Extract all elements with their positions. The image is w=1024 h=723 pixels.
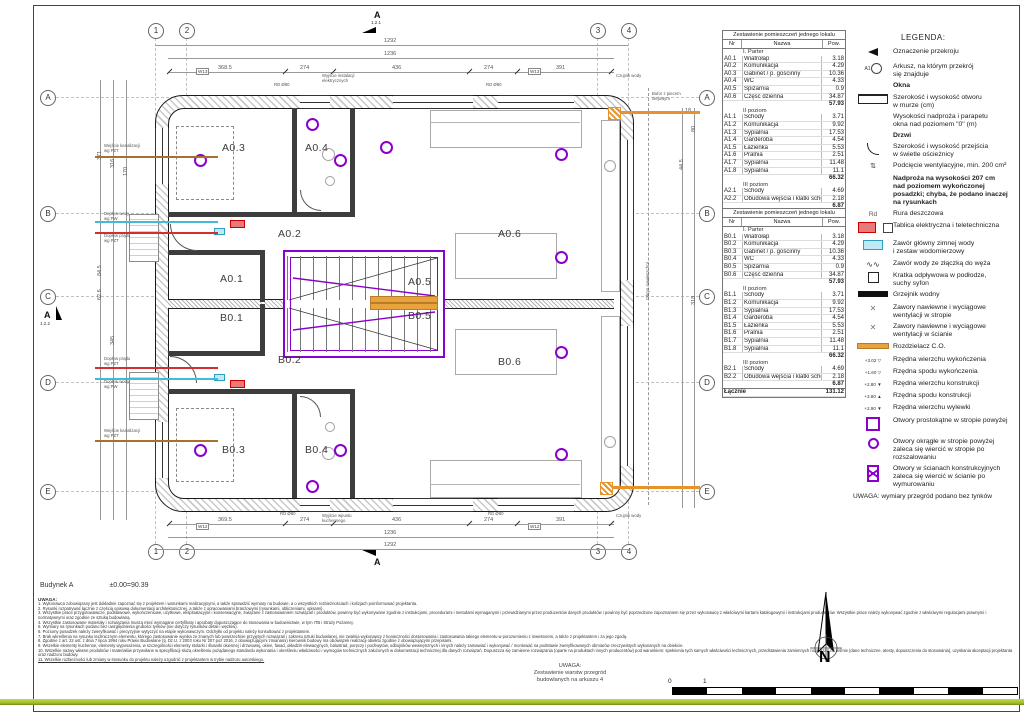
cell-nr: A0.4	[723, 78, 743, 85]
legend-item: Grzejnik wodny	[853, 291, 1021, 301]
north-letter: N	[819, 649, 831, 666]
legend-item: Otwory w ścianach konstrukcyjnych zaleca…	[853, 465, 1021, 489]
section-marker-top: A	[374, 10, 381, 20]
table-row: III poziom	[723, 360, 845, 367]
cell-name: Garderoba	[743, 315, 822, 322]
cell-nr	[723, 108, 742, 115]
vent-symbol	[555, 251, 568, 264]
cell-pow: 4.29	[822, 241, 845, 248]
sewer-line-a	[95, 156, 218, 158]
window-a06-top-2	[498, 95, 574, 109]
sofa-line	[430, 484, 580, 485]
vent-symbol	[555, 148, 568, 161]
cell-name: Gabinet / p. gościnny	[743, 249, 822, 256]
dim-left-5: 62.6	[97, 289, 103, 300]
vent-symbol	[306, 118, 319, 131]
table-title: Zestawienie pomieszczeń jednego lokalu	[723, 31, 845, 40]
cell-name: Sypialnia	[743, 130, 822, 137]
legend-item-label: Podcięcie wentylacyjne, min. 200 cm²	[893, 162, 1021, 171]
cell-nr: A0.3	[723, 71, 743, 78]
grid-bubble-col4-bottom: 4	[621, 544, 637, 560]
table-row: Łącznie 131.12	[723, 388, 845, 397]
cell-name: WC	[743, 78, 822, 85]
table-row: 57.93	[723, 101, 845, 108]
grid-bubble-col1-top: 1	[148, 23, 164, 39]
table-row: 66.32	[723, 175, 845, 182]
cell-pow: 11.48	[822, 160, 845, 167]
legend-item-icon	[853, 438, 893, 462]
window-b06-bottom-1	[393, 498, 473, 512]
table-title: Zestawienie pomieszczeń jednego lokalu	[723, 209, 845, 218]
legend-item: Otwory prostokątne w stropie powyżej	[853, 417, 1021, 435]
table-row: III poziom	[723, 182, 845, 189]
cell-name: Część dzienna	[743, 94, 822, 101]
table-row: B1.7 Sypialnia 11.48	[723, 338, 845, 346]
window-tag-w13-left: W13	[196, 68, 209, 75]
dim-top-seg2: 274	[300, 65, 309, 71]
legend-item-label: Zawór główny zimnej wody i zestaw wodomi…	[893, 240, 1021, 256]
legend-item-icon	[853, 94, 893, 110]
dim-line-left-1	[100, 80, 101, 520]
cell-nr: A1.8	[723, 168, 743, 175]
table-row: II poziom	[723, 108, 845, 115]
legend-item-icon	[853, 465, 893, 489]
legend-item: Kratka odpływowa w podłodze, suchy syfon	[853, 272, 1021, 288]
cell-pow: 4.33	[822, 256, 845, 263]
basin-b04	[325, 422, 335, 432]
table-row: B1.8 Sypialnia 11.1	[723, 346, 845, 354]
cell-pow	[822, 49, 845, 56]
section-marker-left: A	[44, 310, 51, 320]
cell-nr: B2.1	[723, 366, 743, 373]
legend-item-label: Otwory prostokątne w stropie powyżej	[893, 417, 1021, 435]
buffer-label: Bufor z piecem olejowym	[652, 92, 681, 102]
sewer-line-b	[95, 440, 218, 442]
cell-name: I. Parter	[742, 49, 822, 56]
legend-item-label: Zawory nawiewne i wyciągowe wentylacji w…	[893, 323, 1021, 339]
table-row: A0.1 Wiatrołap 3.18	[723, 56, 845, 64]
legend-item: Rd Rura deszczowa	[853, 210, 1021, 219]
legend-item-icon: ✕	[853, 304, 893, 320]
dim-line-bottom-inner	[168, 537, 614, 538]
cell-name	[742, 175, 822, 182]
legend-item-label: Szerokość i wysokość przejścia w świetle…	[893, 143, 1021, 159]
grid-bubble-col4-top: 4	[621, 23, 637, 39]
legend-item-icon: Rd	[853, 210, 893, 219]
grid-bubble-row-b-left: B	[40, 206, 56, 222]
cell-pow: 0.9	[822, 264, 845, 271]
cell-pow: 66.32	[822, 175, 845, 182]
table-row: B0.6 Część dzienna 34.87	[723, 272, 845, 280]
scale-label-0: 0	[668, 678, 672, 685]
wall-a03-a04	[292, 108, 297, 216]
cell-name: I. Parter	[742, 227, 822, 234]
legend-item-label: Otwory okrągłe w stropie powyżej zaleca …	[893, 438, 1021, 462]
note-item: 11. Wszelkie rozbieżności lub zmiany w s…	[38, 658, 1014, 663]
cell-name	[742, 279, 822, 286]
room-label-b03: B0.3	[222, 444, 245, 456]
dim-bot-seg4: 274	[484, 517, 493, 523]
cell-nr	[723, 49, 742, 56]
room-schedule-table-a: Zestawienie pomieszczeń jednego lokalu N…	[722, 30, 846, 220]
dim-top-seg5: 391	[556, 65, 565, 71]
col-nr: Nr	[723, 218, 742, 226]
legend-item-label: Wysokości nadproża i parapetu okna nad p…	[893, 113, 1021, 129]
dim-line-top-total	[155, 45, 628, 46]
legend-item-icon: +2.80 ▼	[853, 380, 893, 389]
grid-bubble-row-a-left: A	[40, 90, 56, 106]
legend-item-icon: ⇅	[853, 162, 893, 171]
cell-nr: B0.4	[723, 256, 743, 263]
cell-nr: B1.7	[723, 338, 743, 345]
legend-item-icon: +1.60 ▽	[853, 368, 893, 377]
cell-pow	[822, 108, 845, 115]
legend-item: Szerokość i wysokość otworu w murze (cm)	[853, 94, 1021, 110]
cell-name: Sypialnia	[743, 308, 822, 315]
grid-bubble-row-d-left: D	[40, 375, 56, 391]
legend-item-label: Rzędna spodu konstrukcji	[893, 392, 1021, 401]
table-row: B0.2 Komunikacja 4.29	[723, 241, 845, 249]
legend-item-label: Kratka odpływowa w podłodze, suchy syfon	[893, 272, 1021, 288]
cell-name: Schody	[743, 188, 822, 195]
col-pow: Pow.	[823, 40, 845, 48]
section-sheet-left: 1.2.2	[40, 321, 50, 326]
kitchen-out-label: Wyjście wpustu kuchennego	[322, 514, 352, 524]
grid-bubble-col2-bottom: 2	[179, 544, 195, 560]
table-row: A1.4 Garderoba 4.54	[723, 137, 845, 145]
dim-right-2: 80	[691, 126, 697, 132]
sofa-line	[430, 122, 580, 123]
co-manifold-a	[370, 296, 438, 303]
cell-name: Spiżarnia	[743, 86, 822, 93]
sewer-label-b: Wejście kanalizacji wg PZT	[104, 429, 140, 439]
cell-pow: 11.1	[822, 346, 845, 353]
scale-bar	[672, 687, 1018, 695]
drain-line	[612, 486, 700, 489]
electrical-panel-a	[230, 220, 245, 228]
cell-name: Spiżarnia	[743, 264, 822, 271]
cell-name: Wiatrołap	[743, 234, 822, 241]
cell-name: Sypialnia	[743, 168, 822, 175]
cell-name: Sypialnia	[743, 160, 822, 167]
cell-name: Schody	[743, 292, 822, 299]
cell-pow: 131.12	[822, 389, 845, 396]
table-row: B0.3 Gabinet / p. gościnny 10.36	[723, 249, 845, 257]
building-caption: Budynek A ±0.00=90.39	[40, 582, 183, 589]
dim-bot-seg1: 369.5	[218, 517, 232, 523]
legend-item-label: Drzwi	[893, 132, 1021, 140]
cell-pow: 10.36	[822, 249, 845, 256]
legend-item: Tablica elektryczna i teletechniczna	[853, 222, 1021, 237]
vent-symbol	[334, 154, 347, 167]
cell-pow	[822, 182, 845, 189]
legend-item: Oznaczenie przekroju	[853, 48, 1021, 60]
buffer-connection-icon	[608, 107, 621, 120]
table-row: A0.5 Spiżarnia 0.9	[723, 86, 845, 94]
table-row: A1.7 Sypialnia 11.48	[723, 160, 845, 168]
legend-item-icon	[853, 417, 893, 435]
water-label-b: Dopływ wody wg PW	[104, 380, 129, 390]
legend-item-label: Rura deszczowa	[893, 210, 1021, 219]
table-row: B0.4 WC 4.33	[723, 256, 845, 264]
cell-pow: 10.36	[822, 71, 845, 78]
table-row: B1.1 Schody 3.71	[723, 292, 845, 300]
legend-item: Otwory okrągłe w stropie powyżej zaleca …	[853, 438, 1021, 462]
legend-item-label: Okna	[893, 82, 1021, 90]
legend-item: +2.90 ▼ Rzędna wierzchu wylewki	[853, 404, 1021, 413]
legend-item: +1.60 ▽ Rzędna spodu wykończenia	[853, 368, 1021, 377]
table-header: Nr Nazwa Pow.	[723, 218, 845, 227]
window-a04	[300, 95, 330, 109]
col-nr: Nr	[723, 40, 742, 48]
table-row: B2.1 Schody 4.69	[723, 366, 845, 374]
cell-nr: B0.3	[723, 249, 743, 256]
cell-pow: 4.69	[822, 188, 845, 195]
room-label-a06: A0.6	[498, 228, 521, 240]
cell-pow	[822, 360, 845, 367]
table-row: A2.1 Schody 4.69	[723, 188, 845, 196]
cell-nr: A1.6	[723, 152, 743, 159]
dim-line-top-inner	[168, 58, 614, 59]
cell-pow: 17.53	[822, 130, 845, 137]
cell-nr: A0.2	[723, 63, 743, 70]
cell-name: Komunikacja	[743, 300, 822, 307]
wall-a03-bottom	[168, 212, 355, 217]
table-row: B2.2 Obudowa wejścia i klatki schodowej …	[723, 374, 845, 382]
legend-item-label: Rzędna wierzchu wylewki	[893, 404, 1021, 413]
legend-item-icon: +3.80 ▲	[853, 392, 893, 401]
room-label-a04: A0.4	[305, 142, 328, 154]
room-label-b01: B0.1	[220, 312, 243, 324]
dim-line-bottom-total	[155, 549, 628, 550]
table-row: B1.5 Łazienka 5.53	[723, 323, 845, 331]
dim-top-inner: 1236	[384, 51, 396, 57]
sofa-b06	[430, 460, 582, 498]
legend-item: A1 Arkusz, na którym przekrój się znajdu…	[853, 63, 1021, 79]
table-row: B1.2 Komunikacja 9.92	[723, 300, 845, 308]
cell-nr: B2.2	[723, 374, 743, 381]
cell-name: Łazienka	[743, 323, 822, 330]
col-nazwa: Nazwa	[742, 40, 823, 48]
dim-top-seg4: 274	[484, 65, 493, 71]
legend-item-icon	[853, 343, 893, 353]
cell-name: Komunikacja	[743, 63, 822, 70]
rain-pipe-tag-4: RD Ø80	[488, 512, 504, 517]
cell-name: Schody	[743, 366, 822, 373]
cell-pow: 2.51	[822, 330, 845, 337]
cell-nr: B0.1	[723, 234, 743, 241]
rain-pipe-tag-1: RD Ø80	[274, 83, 290, 88]
buffer-line	[620, 111, 700, 114]
legend-item: ✕ Zawory nawiewne i wyciągowe wentylacji…	[853, 323, 1021, 339]
sink-b	[604, 436, 616, 448]
room-label-b06: B0.6	[498, 356, 521, 368]
grid-bubble-col3-bottom: 3	[590, 544, 606, 560]
kitchen-counter-a	[601, 120, 620, 292]
vent-symbol	[334, 444, 347, 457]
cell-name	[742, 389, 822, 396]
cell-pow: 2.51	[822, 152, 845, 159]
legend-item-icon	[853, 240, 893, 256]
sink-a	[604, 160, 616, 172]
legend-item-icon	[853, 48, 893, 60]
table-row: 6.87	[723, 381, 845, 388]
dim-line-right-2	[694, 108, 695, 508]
legend-item-label: Otwory w ścianach konstrukcyjnych zaleca…	[893, 465, 1021, 489]
kitchen-counter-b	[601, 316, 620, 488]
cell-nr: B1.3	[723, 308, 743, 315]
cell-pow: 4.54	[822, 315, 845, 322]
power-line-b	[95, 367, 218, 369]
window-tag-w12-right: W12	[528, 523, 541, 530]
elec-out-label-top: Wyjście instalacji elektrycznych	[322, 74, 354, 84]
north-arrow-icon: N	[806, 590, 846, 681]
scale-label-1: 1	[703, 678, 707, 685]
cell-name: Obudowa wejścia i klatki schodowej	[743, 374, 822, 381]
cell-nr	[723, 101, 742, 108]
legend-item: ⇅ Podcięcie wentylacyjne, min. 200 cm²	[853, 162, 1021, 171]
section-sheet-top: 1.2.1	[371, 20, 381, 25]
table-row: II poziom	[723, 286, 845, 293]
wall-b04-kitchen	[350, 390, 355, 498]
table-row: A1.6 Pralnia 2.51	[723, 152, 845, 160]
room-label-b02: B0.2	[278, 354, 301, 366]
room-label-a03: A0.3	[222, 142, 245, 154]
legend-item-label: Oznaczenie przekroju	[893, 48, 1021, 60]
pavement-label: Obrys nawierzchni	[645, 262, 650, 300]
legend-item-icon: A1	[853, 63, 893, 79]
section-marker-bottom: A	[374, 557, 381, 567]
cell-nr: B1.2	[723, 300, 743, 307]
cell-pow: 57.93	[822, 101, 845, 108]
grid-bubble-row-a-right: A	[699, 90, 715, 106]
power-label-a: Dopływ prądu wg PZT	[104, 234, 130, 244]
dim-right-3: 44.5	[679, 159, 685, 170]
legend-item-label: Arkusz, na którym przekrój się znajduje	[893, 63, 1021, 79]
legend-item-icon: +2.90 ▼	[853, 404, 893, 413]
grid-bubble-row-e-left: E	[40, 484, 56, 500]
cell-name	[742, 353, 822, 360]
vent-symbol	[380, 141, 393, 154]
legend-item-icon: ✕	[853, 323, 893, 339]
legend-item: Drzwi	[853, 132, 1021, 140]
grid-bubble-col1-bottom: 1	[148, 544, 164, 560]
cell-pow: 34.87	[822, 272, 845, 279]
cell-nr: B1.4	[723, 315, 743, 322]
room-label-a02: A0.2	[278, 228, 301, 240]
legend-item: Nadproża na wysokości 207 cm nad poziome…	[853, 175, 1021, 207]
dim-bot-seg2: 274	[300, 517, 309, 523]
cell-nr: A1.5	[723, 145, 743, 152]
window-tag-w12-left: W12	[196, 523, 209, 530]
dim-left-6: 345	[110, 336, 116, 345]
water-label-a: Dopływ wody wg PW	[104, 212, 129, 222]
cell-pow: 3.18	[822, 56, 845, 63]
legend-item: Szerokość i wysokość przejścia w świetle…	[853, 143, 1021, 159]
cell-nr: A2.1	[723, 188, 743, 195]
drawing-sheet: 1 2 3 4 1 2 3 4 A B C D E A B C D E A 1.…	[0, 0, 1024, 723]
sofa-a06	[430, 110, 582, 148]
cell-pow: 9.92	[822, 300, 845, 307]
cell-nr: B1.5	[723, 323, 743, 330]
table-row: A1.8 Sypialnia 11.1	[723, 168, 845, 176]
wall-a01-a02	[260, 250, 265, 302]
wall-a04-kitchen	[350, 108, 355, 216]
cell-name: Sypialnia	[743, 346, 822, 353]
wall-b03-b04	[292, 390, 297, 498]
cell-pow: 5.53	[822, 145, 845, 152]
cell-pow: 17.53	[822, 308, 845, 315]
legend-title: LEGENDA:	[901, 33, 1021, 42]
table-row: B1.6 Pralnia 2.51	[723, 330, 845, 338]
dim-top-seg3: 436	[392, 65, 401, 71]
wall-a01-top	[168, 250, 265, 255]
cell-name: Schody	[743, 114, 822, 121]
cell-nr	[723, 286, 742, 293]
wall-b01-b02	[260, 304, 265, 356]
vent-symbol	[194, 444, 207, 457]
table-row: B1.3 Sypialnia 17.53	[723, 308, 845, 316]
grid-bubble-row-c-left: C	[40, 289, 56, 305]
table-row: A0.3 Gabinet / p. gościnny 10.36	[723, 71, 845, 79]
cell-name: Garderoba	[743, 137, 822, 144]
grid-bubble-row-b-right: B	[699, 206, 715, 222]
cell-pow: 4.54	[822, 137, 845, 144]
legend-item: Okna	[853, 82, 1021, 90]
legend-item: ∿∿ Zawór wody ze złączką do węża	[853, 260, 1021, 269]
legend-item: +3.80 ▲ Rzędna spodu konstrukcji	[853, 392, 1021, 401]
cell-nr: A2.2	[723, 196, 743, 203]
power-label-b: Dopływ prądu wg PZT	[104, 357, 130, 367]
cell-pow: 66.32	[822, 353, 845, 360]
window-b06-bottom-2	[498, 498, 574, 512]
room-label-a05: A0.5	[408, 276, 431, 288]
legend-item: Rozdzielacz C.O.	[853, 343, 1021, 353]
cell-name	[742, 101, 822, 108]
dim-left-3: 170	[123, 167, 129, 176]
datum-level: ±0.00=90.39	[109, 582, 148, 589]
dim-bot-total: 1292	[384, 542, 396, 548]
cell-pow: 4.29	[822, 63, 845, 70]
legend-item: +3.02 ▽ Rzędna wierzchu wykończenia	[853, 356, 1021, 365]
cell-name: II poziom	[742, 108, 822, 115]
cell-pow: 0.9	[822, 86, 845, 93]
window-a06-top-1	[393, 95, 473, 109]
glazing-b06-right	[620, 326, 634, 466]
cell-name	[742, 381, 822, 388]
window-b04	[300, 498, 330, 512]
cell-nr	[723, 381, 742, 388]
dim-top-total: 1292	[384, 38, 396, 44]
dim-line-top-segs	[168, 72, 614, 73]
legend-item: +2.80 ▼ Rzędna wierzchu konstrukcji	[853, 380, 1021, 389]
cell-pow: 3.18	[822, 234, 845, 241]
cell-pow: 4.69	[822, 366, 845, 373]
cell-pow: 5.53	[822, 323, 845, 330]
window-tag-w13-right: W13	[528, 68, 541, 75]
table-row: B1.4 Garderoba 4.54	[723, 315, 845, 323]
cell-name: Komunikacja	[743, 122, 822, 129]
legend-item-label: Grzejnik wodny	[893, 291, 1021, 301]
wall-b01-bottom	[168, 351, 265, 356]
cell-pow: 6.87	[822, 381, 845, 388]
legend-item-icon	[853, 113, 893, 129]
cell-nr	[723, 227, 742, 234]
grid-bubble-col3-top: 3	[590, 23, 606, 39]
cell-nr: A1.1	[723, 114, 743, 121]
water-sensor-label-bottom: Czujnik wody	[616, 514, 641, 519]
drain-connection-icon	[600, 482, 613, 495]
